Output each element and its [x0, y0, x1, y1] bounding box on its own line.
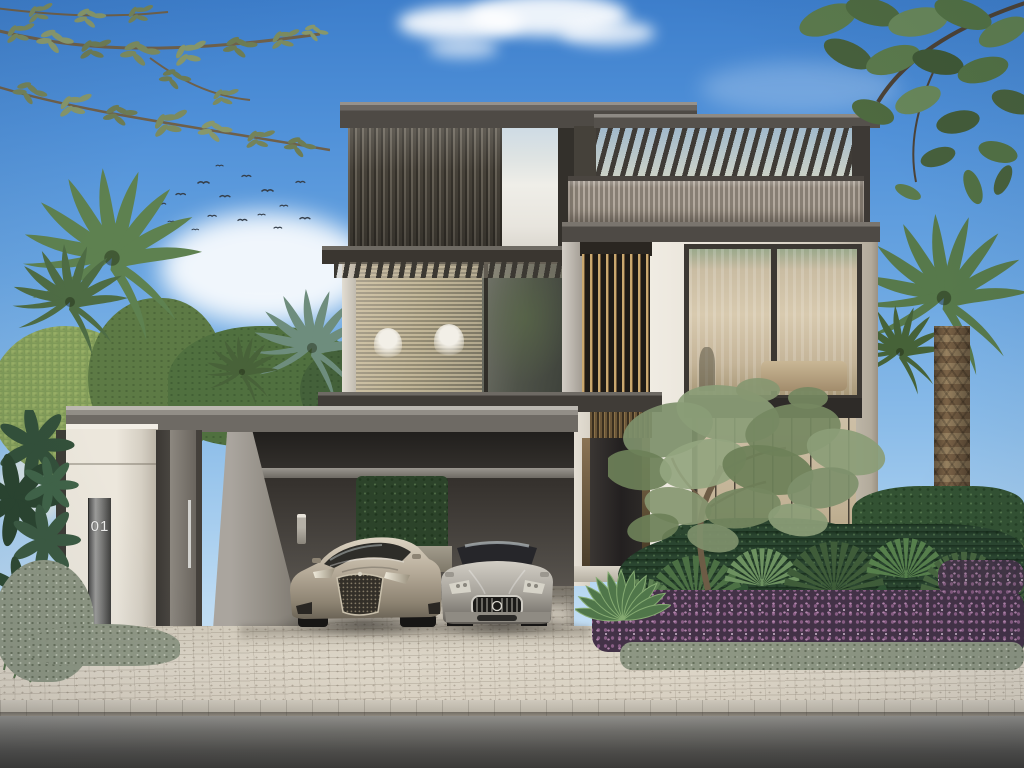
olive-branches — [0, 0, 330, 185]
groundcover-strip — [620, 642, 1024, 670]
agave-plant — [575, 532, 671, 624]
overhanging-canopy — [788, 0, 1024, 227]
low-shrub-row — [30, 624, 180, 666]
purple-flower-patch — [938, 560, 1024, 596]
villa-exterior-photo: 01 — [0, 0, 1024, 768]
